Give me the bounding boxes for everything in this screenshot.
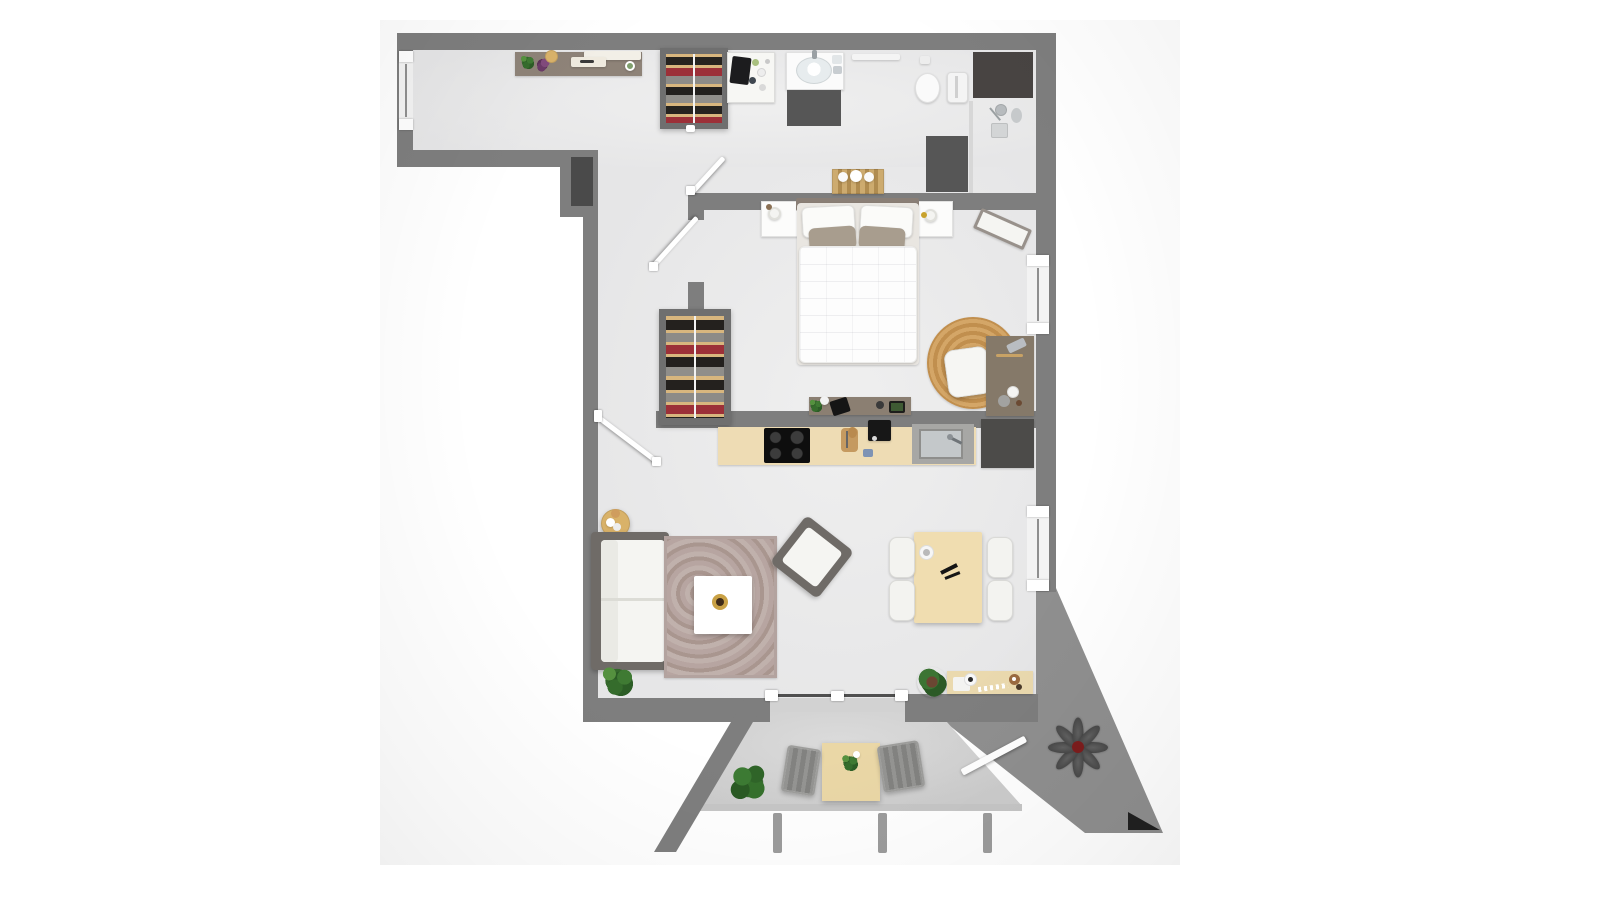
side-table-cup-2 [613, 523, 621, 531]
bath-mat-2 [926, 136, 968, 192]
sideboard-knob [625, 61, 635, 71]
walkin-closet [659, 309, 731, 425]
desk-plate [998, 395, 1010, 407]
washer-block [973, 52, 1033, 98]
sideboard-dark-dash [580, 60, 594, 63]
towel-bar [852, 54, 900, 60]
vanity-item-1 [832, 55, 842, 64]
shoe-cabinet [660, 48, 728, 129]
sink-faucet-base [947, 434, 953, 440]
bath-mat-1 [787, 90, 841, 126]
cooktop [764, 428, 810, 463]
towel-roll-2 [850, 170, 862, 182]
sliding-door-tab-1 [765, 690, 778, 701]
hall-desk-item-3 [749, 77, 756, 84]
bath-sink-basin [796, 57, 832, 84]
dining-chair-tl [889, 537, 915, 578]
sink-basin [919, 429, 963, 459]
sideboard2-choc-dot [1012, 677, 1016, 681]
balcony-rail-strip [688, 804, 1022, 811]
shower-glass [969, 101, 973, 193]
bed-duvet [799, 246, 917, 363]
desk-dot [1016, 400, 1022, 406]
hall-desk-item-4 [759, 84, 766, 91]
sofa-backrest-shade [601, 540, 618, 662]
rail-post-2 [878, 813, 887, 853]
entry-doormat [571, 157, 593, 206]
living-plant [598, 664, 636, 697]
hall-desk-item-5 [765, 59, 770, 64]
toilet-bowl [915, 73, 940, 103]
rail-post-3 [983, 813, 992, 853]
coffee-machine-dot [872, 436, 877, 441]
sideboard2-dot [1016, 684, 1022, 690]
bath-faucet [812, 50, 817, 59]
door-jamb-3 [594, 410, 602, 422]
dining-plate-center [923, 549, 930, 556]
terrace-flower-sculpture [1046, 715, 1110, 779]
shoe-cabinet-knob [686, 125, 695, 132]
hall-desk-item-1 [752, 59, 759, 66]
sideboard2-cup-center [968, 677, 973, 682]
sliding-door-tab-3 [895, 690, 908, 701]
balcony-bush [727, 761, 771, 805]
toilet-paper [920, 56, 930, 64]
dining-chair-br [987, 580, 1013, 621]
vanity-item-2 [833, 66, 842, 74]
sideboard-bowl [545, 50, 558, 63]
shower-drain [991, 123, 1008, 138]
dining-chair-tr [987, 537, 1013, 578]
towel-roll-1 [838, 172, 848, 182]
sliding-door-tab-2 [831, 691, 844, 701]
sofa-crease [601, 598, 665, 601]
window-living [1027, 506, 1049, 591]
hall-desk-item-2 [757, 68, 766, 77]
sideboard-plant [519, 54, 535, 70]
dresser-disc [876, 401, 884, 409]
wall-stub-b [688, 282, 704, 312]
dining-plant-pot [917, 667, 947, 697]
flower-center [1072, 741, 1084, 753]
rail-post-1 [773, 813, 782, 853]
balcony-chair-left [781, 745, 822, 797]
dining-chair-bl [889, 580, 915, 621]
door-jamb-4 [652, 457, 661, 466]
balcony-chair-right [877, 740, 926, 793]
kitchen-egg [848, 427, 857, 438]
balcony-table [822, 743, 880, 801]
wall-bottom-right [905, 694, 1038, 722]
door-jamb-2 [649, 262, 658, 271]
nightstand-left-accent [766, 204, 772, 210]
side-table-bowl [611, 509, 620, 518]
window-bedroom [1027, 255, 1049, 334]
balcony-table-cup [853, 751, 860, 758]
floor-plan-canvas [0, 0, 1600, 900]
coffee-table-bowl-center [716, 598, 724, 606]
towel-roll-3 [864, 172, 874, 182]
shower-oval [1011, 108, 1022, 123]
window-left [399, 51, 413, 130]
fridge [981, 419, 1034, 468]
nightstand-right-gold [921, 212, 927, 218]
desk-wood-stick [996, 354, 1023, 357]
dresser-pad [889, 401, 905, 413]
door-jamb-1 [686, 186, 695, 195]
dresser-ball [820, 396, 829, 405]
floor-plan-screenshot [0, 0, 1600, 900]
desk-cup [1007, 386, 1019, 398]
toilet-tank-slot [955, 76, 958, 98]
kitchen-blue-item [863, 449, 873, 457]
